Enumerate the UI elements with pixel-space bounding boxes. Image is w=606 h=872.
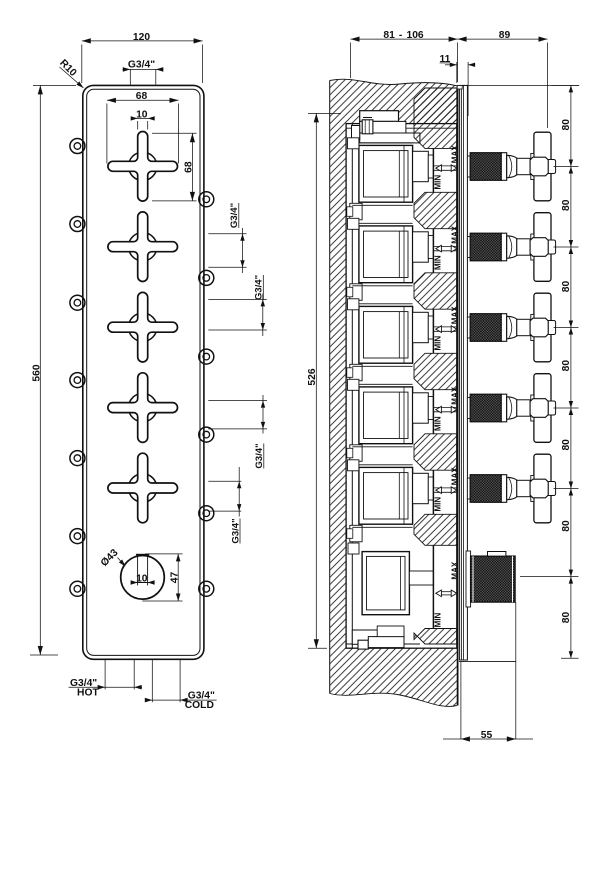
svg-text:MIN: MIN: [434, 255, 443, 270]
svg-text:MIN: MIN: [434, 612, 443, 627]
svg-text:526: 526: [307, 368, 318, 385]
svg-text:COLD: COLD: [185, 700, 214, 711]
svg-text:MIN: MIN: [434, 336, 443, 351]
svg-text:80: 80: [561, 119, 572, 131]
svg-text:120: 120: [133, 32, 150, 43]
svg-text:10: 10: [136, 573, 148, 584]
svg-text:560: 560: [32, 364, 43, 381]
svg-text:81 - 106: 81 - 106: [383, 30, 424, 41]
svg-text:MIN: MIN: [434, 175, 443, 190]
svg-text:55: 55: [481, 730, 493, 741]
svg-text:89: 89: [499, 30, 511, 41]
svg-text:68: 68: [136, 91, 148, 102]
svg-text:80: 80: [561, 520, 572, 532]
svg-text:G3/4": G3/4": [128, 59, 155, 70]
svg-text:HOT: HOT: [77, 688, 99, 699]
svg-text:68: 68: [183, 161, 194, 173]
svg-text:80: 80: [561, 360, 572, 372]
svg-text:10: 10: [136, 109, 148, 120]
svg-text:47: 47: [169, 572, 180, 584]
svg-text:80: 80: [561, 199, 572, 211]
svg-text:80: 80: [561, 612, 572, 624]
svg-text:80: 80: [561, 439, 572, 451]
svg-text:80: 80: [561, 281, 572, 293]
svg-text:MIN: MIN: [434, 497, 443, 512]
svg-text:MIN: MIN: [434, 416, 443, 431]
